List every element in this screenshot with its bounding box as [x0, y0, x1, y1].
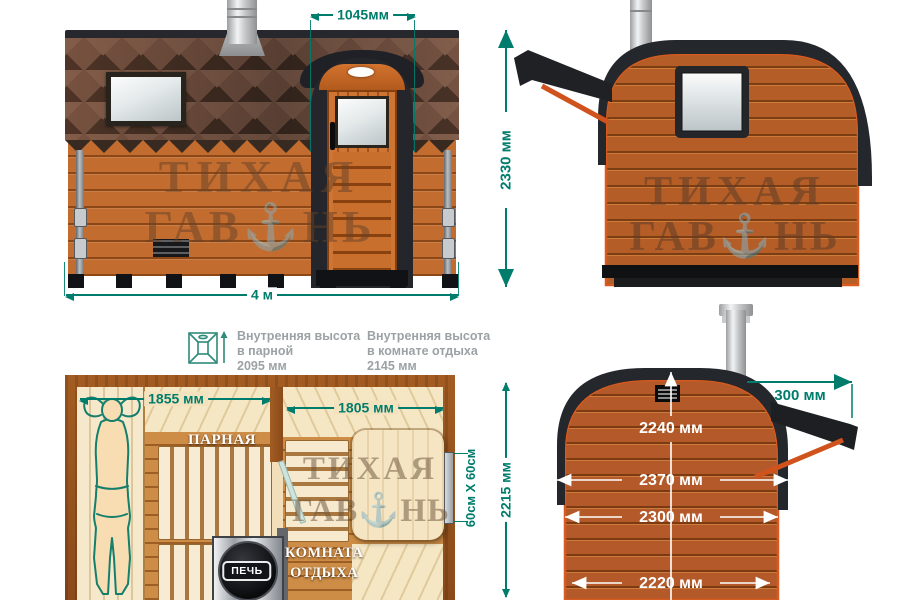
- side-elevation: ТИХАЯ ГАВ⚓НЬ 2330 мм: [490, 0, 880, 300]
- front-door-handle: [330, 122, 335, 150]
- rear-elevation: 300 мм 2240 мм 2370 мм 2300 мм 2220 мм: [550, 300, 900, 600]
- front-foot: [220, 274, 236, 288]
- plan-bench-slats-upper: [158, 446, 272, 540]
- dim-door-width-label: 1045мм: [333, 7, 393, 22]
- strap-buckle: [74, 238, 87, 259]
- front-foot: [116, 274, 132, 288]
- dim-rear-height-label: 2240 мм: [639, 420, 703, 437]
- dim-side-height-label: 2330 мм: [498, 130, 515, 190]
- strap-buckle: [74, 208, 87, 227]
- rear-vent-grille: [655, 385, 680, 402]
- plan-partition-wall: [270, 387, 283, 462]
- front-door-lamp: [348, 67, 374, 77]
- side-base-skid: [602, 265, 858, 278]
- plan-rest-floor-patch: [352, 544, 443, 600]
- side-watermark-line2: ГАВ⚓НЬ: [629, 211, 840, 260]
- dim-extension-line: [64, 262, 65, 296]
- dim-rear-mid-label: 2300 мм: [639, 509, 703, 526]
- plan-rest-label: КОМНАТА ОТДЫХА: [285, 543, 364, 583]
- dim-parnaya-label: 1855 мм: [144, 391, 208, 406]
- note-line: 2145 мм: [367, 359, 490, 374]
- watermark-line1: ТИХАЯ: [292, 448, 448, 490]
- strap-buckle: [442, 208, 455, 227]
- dim-depth-label: 2215 мм: [498, 458, 513, 522]
- note-line: 2095 мм: [237, 359, 360, 374]
- note-line: в парной: [237, 344, 360, 359]
- note-parnaya-height: Внутренняя высота в парной 2095 мм: [237, 329, 360, 374]
- side-base-skid: [614, 278, 842, 287]
- side-awning: [514, 50, 612, 102]
- plan-stove-label: ПЕЧЬ: [222, 561, 271, 581]
- dim-extension-line: [310, 20, 311, 152]
- dim-rear-base-label: 2220 мм: [639, 575, 703, 592]
- plan-human-figure: [79, 388, 145, 600]
- front-foot: [68, 274, 84, 288]
- plan-parnaya-label: ПАРНАЯ: [188, 432, 256, 449]
- front-foot: [320, 274, 336, 288]
- side-window-glass: [682, 73, 742, 131]
- watermark-line1: ТИХАЯ: [105, 152, 415, 202]
- dim-window-label: 60см X 60см: [464, 445, 478, 532]
- side-watermark-line1: ТИХАЯ: [644, 169, 826, 215]
- front-chimney-pipe: [227, 0, 257, 44]
- note-rest-height: Внутренняя высота в комнате отдыха 2145 …: [367, 329, 490, 374]
- dim-rest-label: 1805 мм: [334, 400, 398, 415]
- dim-rear-outer-label: 2370 мм: [639, 472, 703, 489]
- plan-rest-label-line1: КОМНАТА: [285, 543, 364, 563]
- note-line: Внутренняя высота: [367, 329, 490, 344]
- ceiling-height-icon: [187, 324, 229, 368]
- plan-watermark: ТИХАЯ ГАВ⚓НЬ: [292, 448, 448, 532]
- chimney-band: [227, 16, 257, 18]
- dim-total-width-label: 4 м: [247, 287, 277, 302]
- chimney-band: [227, 8, 257, 10]
- front-foot: [390, 274, 406, 288]
- front-watermark: ТИХАЯ ГАВ⚓НЬ: [105, 152, 415, 252]
- dim-extension-line: [458, 262, 459, 296]
- dim-awning-label: 300 мм: [774, 387, 825, 404]
- sauna-technical-drawing: ТИХАЯ ГАВ⚓НЬ 1045мм 4 м: [0, 0, 900, 600]
- front-door-window: [335, 96, 389, 148]
- note-line: в комнате отдыха: [367, 344, 490, 359]
- front-foot: [166, 274, 182, 288]
- strap-buckle: [442, 238, 455, 259]
- front-window: [106, 72, 186, 126]
- note-line: Внутренняя высота: [237, 329, 360, 344]
- front-foot: [442, 274, 458, 288]
- watermark-line2: ГАВ⚓НЬ: [292, 490, 448, 532]
- plan-rest-label-line2: ОТДЫХА: [285, 563, 364, 583]
- watermark-line2: ГАВ⚓НЬ: [105, 202, 415, 252]
- dim-extension-line: [414, 20, 415, 152]
